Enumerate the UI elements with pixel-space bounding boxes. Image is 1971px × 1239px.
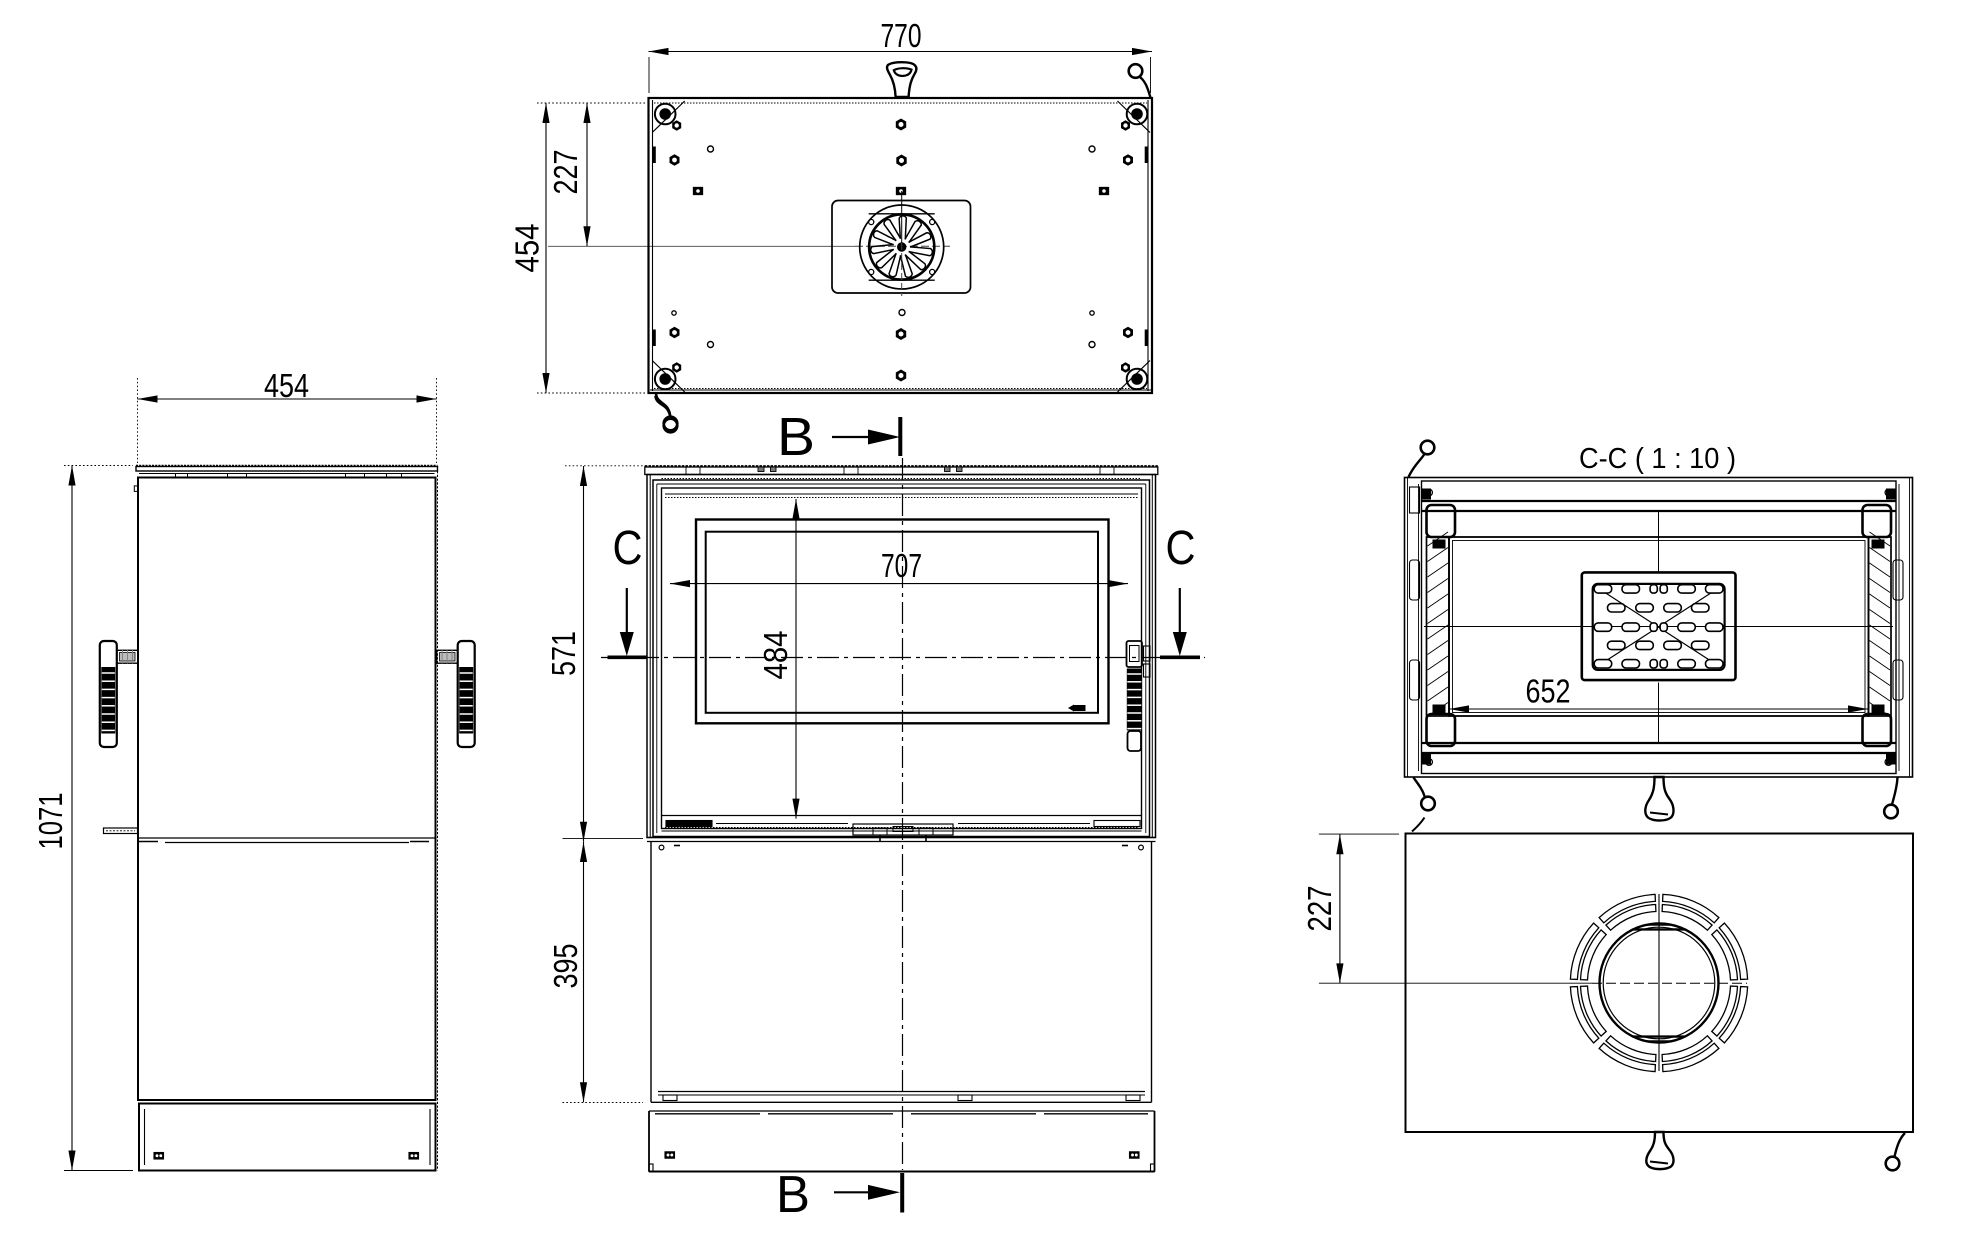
svg-text:B: B	[776, 1166, 810, 1224]
svg-text:484: 484	[757, 631, 794, 680]
svg-text:227: 227	[1301, 886, 1338, 932]
svg-text:454: 454	[509, 224, 546, 273]
svg-text:B: B	[777, 407, 815, 467]
svg-text:707: 707	[881, 547, 922, 584]
svg-text:395: 395	[547, 944, 584, 989]
svg-text:652: 652	[1526, 673, 1571, 710]
svg-text:770: 770	[881, 17, 922, 54]
svg-text:C-C ( 1 : 10 ): C-C ( 1 : 10 )	[1579, 443, 1736, 475]
svg-text:C: C	[1166, 522, 1196, 575]
svg-text:571: 571	[545, 631, 582, 676]
svg-text:1071: 1071	[32, 793, 69, 850]
svg-text:227: 227	[547, 150, 584, 195]
svg-text:C: C	[613, 522, 643, 575]
